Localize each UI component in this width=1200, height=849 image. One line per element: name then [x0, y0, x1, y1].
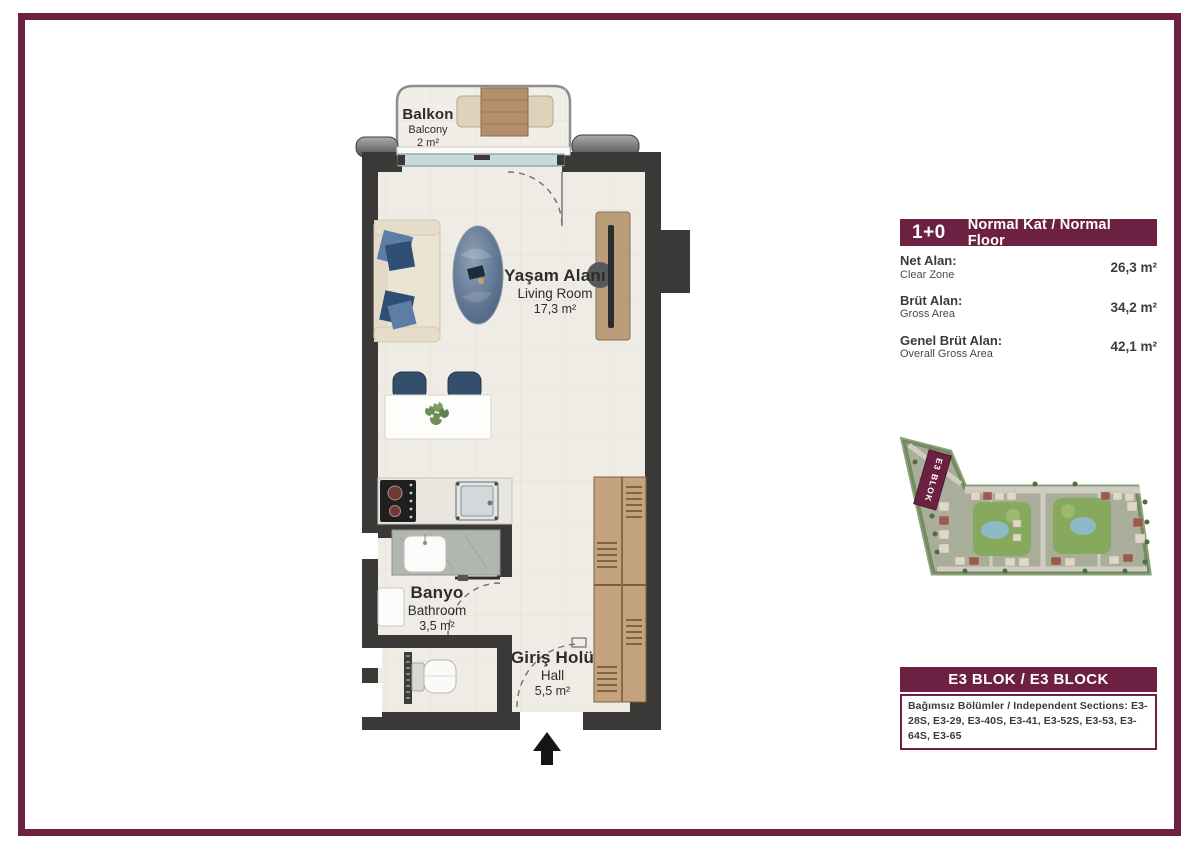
- gross-area-label-en: Gross Area: [900, 308, 962, 321]
- glass-door-frame-left: [398, 155, 405, 165]
- unit-type: 1+0: [912, 222, 946, 244]
- gross-area-row: Brüt Alan: Gross Area 34,2 m²: [900, 293, 1157, 322]
- sofa: [374, 220, 440, 342]
- net-area-value: 26,3 m²: [1110, 260, 1157, 275]
- glass-door-frame-right: [557, 155, 564, 165]
- floor-label: Normal Kat / Normal Floor: [968, 217, 1145, 249]
- balcony-label: Balkon Balcony 2 m²: [368, 106, 488, 150]
- balcony-chair-right: [526, 96, 553, 127]
- living-name-en: Living Room: [480, 286, 630, 302]
- bathroom-label: Banyo Bathroom 3,5 m²: [377, 583, 497, 634]
- pillow: [385, 241, 415, 271]
- living-room-label: Yaşam Alanı Living Room 17,3 m²: [480, 266, 630, 317]
- overall-gross-value: 42,1 m²: [1110, 339, 1157, 354]
- net-area-label-en: Clear Zone: [900, 269, 957, 282]
- stove: [380, 480, 416, 522]
- living-name-tr: Yaşam Alanı: [480, 266, 630, 286]
- hall-name-en: Hall: [480, 668, 625, 684]
- balcony-area: 2 m²: [368, 137, 488, 150]
- radiator: [404, 652, 412, 704]
- hall-area: 5,5 m²: [480, 684, 625, 699]
- block-title-banner: E3 BLOK / E3 BLOCK: [900, 667, 1157, 692]
- glass-door-handle: [474, 155, 490, 160]
- overall-gross-label-tr: Genel Brüt Alan:: [900, 333, 1002, 349]
- kitchen-sink: [456, 482, 498, 520]
- net-area-row: Net Alan: Clear Zone 26,3 m²: [900, 253, 1157, 282]
- bathroom-name-tr: Banyo: [377, 583, 497, 603]
- bathroom-area: 3,5 m²: [377, 619, 497, 634]
- unit-info-header: 1+0 Normal Kat / Normal Floor: [900, 219, 1157, 246]
- balcony-name-en: Balcony: [368, 124, 488, 137]
- gross-area-label-tr: Brüt Alan:: [900, 293, 962, 309]
- net-area-label-tr: Net Alan:: [900, 253, 957, 269]
- bathroom-name-en: Bathroom: [377, 603, 497, 619]
- entrance-arrow: [533, 732, 561, 765]
- overall-gross-area-row: Genel Brüt Alan: Overall Gross Area 42,1…: [900, 333, 1157, 362]
- hall-name-tr: Giriş Holü: [480, 648, 625, 668]
- shower-handle: [458, 575, 468, 581]
- living-area: 17,3 m²: [480, 302, 630, 317]
- toilet-tank: [412, 663, 424, 691]
- overall-gross-label-en: Overall Gross Area: [900, 348, 1002, 361]
- gross-area-value: 34,2 m²: [1110, 300, 1157, 315]
- hall-label: Giriş Holü Hall 5,5 m²: [480, 648, 625, 699]
- site-plan: E3 BLOK: [895, 432, 1165, 587]
- balcony-table: [481, 88, 528, 136]
- kitchen-counter: [378, 478, 512, 524]
- balcony-name-tr: Balkon: [368, 106, 488, 124]
- independent-sections-box: Bağımsız Bölümler / Independent Sections…: [900, 694, 1157, 750]
- page-canvas: Balkon Balcony 2 m² Yaşam Alanı Living R…: [0, 0, 1200, 849]
- area-info-rows: Net Alan: Clear Zone 26,3 m² Brüt Alan: …: [900, 253, 1157, 372]
